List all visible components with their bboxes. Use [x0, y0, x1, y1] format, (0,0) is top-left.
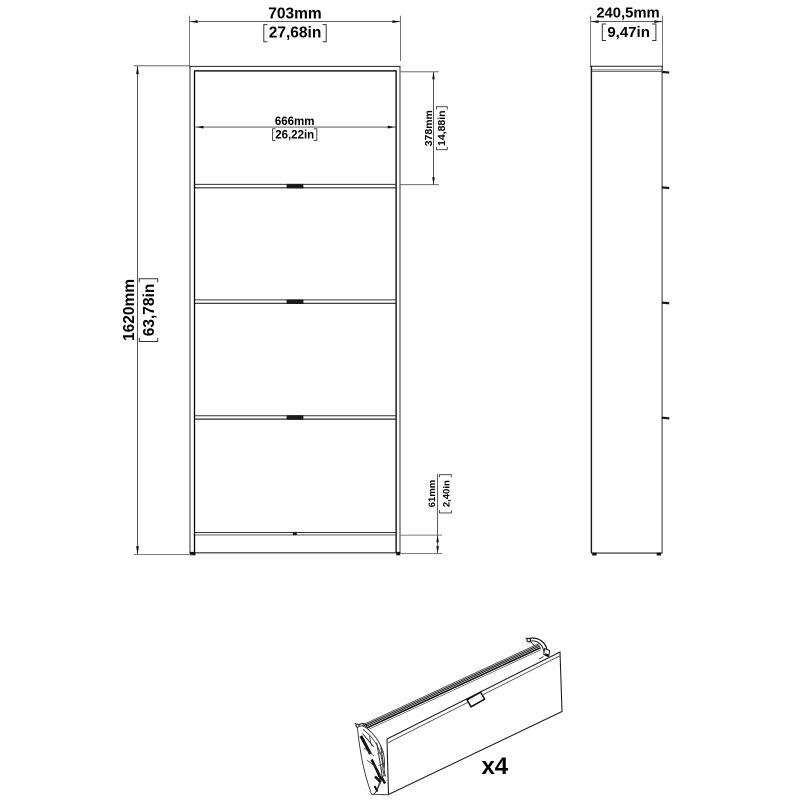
svg-text:x4: x4	[481, 753, 508, 780]
svg-text:240,5mm: 240,5mm	[596, 6, 659, 22]
svg-text:378mm: 378mm	[423, 110, 435, 146]
svg-text:27,68in: 27,68in	[269, 25, 322, 42]
svg-text:666mm: 666mm	[275, 116, 315, 128]
svg-text:26,22in: 26,22in	[275, 129, 314, 141]
svg-text:14,88in: 14,88in	[436, 110, 448, 146]
svg-text:1620mm: 1620mm	[121, 279, 138, 341]
svg-text:703mm: 703mm	[268, 6, 321, 23]
svg-text:2,40in: 2,40in	[441, 480, 452, 507]
svg-text:61mm: 61mm	[427, 480, 438, 507]
svg-text:63,78in: 63,78in	[141, 284, 158, 337]
svg-text:9,47in: 9,47in	[607, 24, 650, 41]
